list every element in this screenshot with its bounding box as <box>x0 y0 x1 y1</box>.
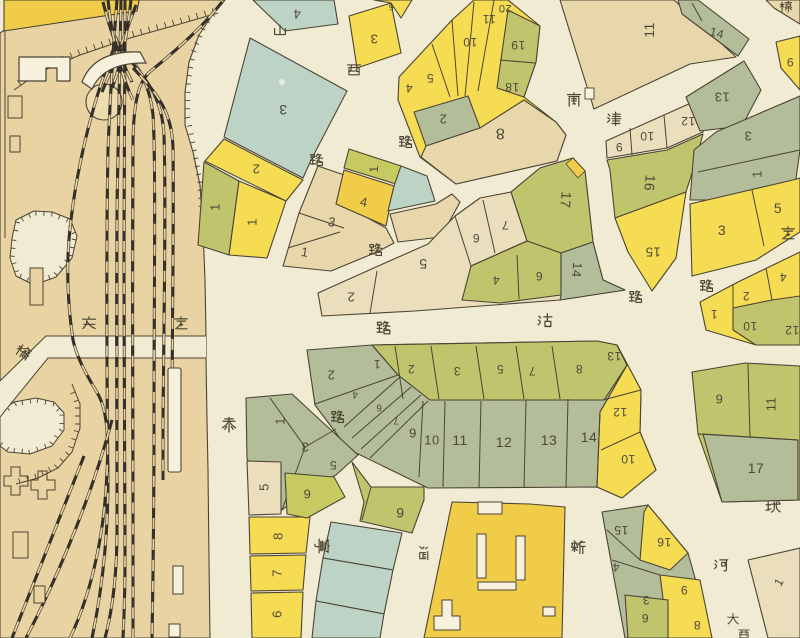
svg-text:12: 12 <box>613 405 627 419</box>
svg-text:2: 2 <box>407 362 414 376</box>
svg-text:9: 9 <box>786 55 793 69</box>
svg-text:12: 12 <box>681 114 695 128</box>
svg-text:9: 9 <box>409 426 417 441</box>
svg-text:1: 1 <box>245 218 260 226</box>
svg-text:11: 11 <box>764 397 779 412</box>
svg-text:10: 10 <box>743 319 757 333</box>
svg-text:7: 7 <box>501 218 508 232</box>
svg-text:10: 10 <box>463 35 477 49</box>
svg-text:12: 12 <box>496 434 513 450</box>
svg-text:17: 17 <box>557 191 574 209</box>
svg-text:4: 4 <box>293 7 301 22</box>
svg-text:1: 1 <box>373 357 380 371</box>
svg-text:6: 6 <box>535 269 542 283</box>
svg-text:3: 3 <box>370 32 378 47</box>
svg-text:5: 5 <box>419 256 427 272</box>
svg-text:2: 2 <box>327 368 335 383</box>
svg-text:6: 6 <box>472 231 479 245</box>
svg-text:4: 4 <box>492 273 499 287</box>
svg-text:2: 2 <box>347 290 355 305</box>
svg-text:12: 12 <box>785 323 799 337</box>
svg-text:4: 4 <box>612 560 619 574</box>
svg-text:16: 16 <box>657 535 671 549</box>
svg-text:3: 3 <box>279 102 287 118</box>
svg-text:9: 9 <box>615 140 622 154</box>
svg-text:3: 3 <box>744 129 752 144</box>
svg-text:10: 10 <box>424 433 439 448</box>
svg-text:11: 11 <box>452 432 468 448</box>
svg-text:10: 10 <box>640 129 654 143</box>
svg-text:3: 3 <box>301 440 309 455</box>
svg-text:10: 10 <box>621 452 635 466</box>
svg-text:5: 5 <box>774 200 782 216</box>
svg-text:4: 4 <box>779 270 786 284</box>
svg-text:18: 18 <box>505 80 519 94</box>
svg-text:5: 5 <box>257 483 272 491</box>
svg-text:20: 20 <box>498 2 511 14</box>
svg-text:16: 16 <box>641 174 658 192</box>
svg-text:13: 13 <box>714 90 729 105</box>
svg-text:3: 3 <box>718 222 726 238</box>
svg-text:3: 3 <box>642 593 649 607</box>
svg-text:4: 4 <box>405 81 412 95</box>
svg-text:14: 14 <box>581 429 598 445</box>
svg-text:8: 8 <box>693 618 700 632</box>
svg-text:19: 19 <box>511 38 525 52</box>
svg-text:15: 15 <box>614 523 628 537</box>
svg-text:5: 5 <box>496 362 503 376</box>
svg-text:11: 11 <box>641 22 657 38</box>
svg-text:6: 6 <box>376 402 382 413</box>
svg-text:6: 6 <box>641 611 648 625</box>
svg-text:1: 1 <box>367 165 381 172</box>
svg-text:2: 2 <box>742 289 749 303</box>
svg-text:7: 7 <box>528 364 535 378</box>
svg-text:13: 13 <box>607 349 621 363</box>
svg-text:6: 6 <box>715 392 723 407</box>
svg-text:8: 8 <box>575 362 582 376</box>
svg-text:4: 4 <box>352 389 358 400</box>
svg-text:8: 8 <box>495 125 504 142</box>
svg-text:6: 6 <box>303 487 311 502</box>
svg-text:6: 6 <box>270 610 285 618</box>
svg-text:6: 6 <box>388 2 394 12</box>
svg-text:1: 1 <box>710 307 717 321</box>
svg-text:8: 8 <box>271 532 286 540</box>
svg-text:9: 9 <box>680 583 687 597</box>
svg-text:2: 2 <box>439 112 447 127</box>
svg-text:1: 1 <box>273 417 288 425</box>
svg-text:14: 14 <box>569 262 585 279</box>
svg-text:6: 6 <box>396 505 404 521</box>
svg-text:5: 5 <box>329 458 336 472</box>
svg-text:2: 2 <box>252 162 260 177</box>
svg-text:13: 13 <box>541 432 558 448</box>
svg-text:3: 3 <box>453 364 460 378</box>
svg-text:15: 15 <box>645 245 660 260</box>
svg-text:11: 11 <box>482 12 495 26</box>
svg-text:17: 17 <box>748 460 765 476</box>
svg-text:7: 7 <box>393 415 399 426</box>
svg-text:7: 7 <box>270 569 285 577</box>
svg-text:1: 1 <box>208 203 223 211</box>
svg-text:1: 1 <box>750 170 765 178</box>
svg-text:5: 5 <box>426 71 433 85</box>
